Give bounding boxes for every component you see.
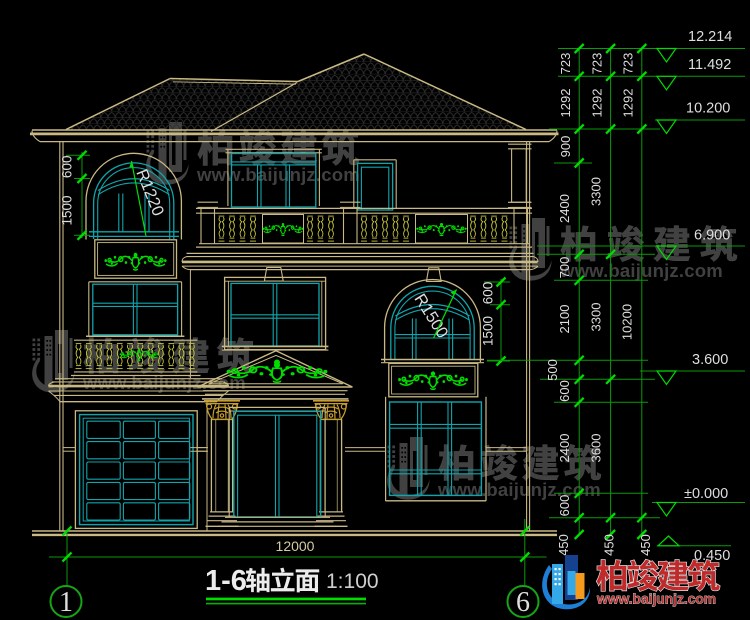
svg-text:723: 723 xyxy=(590,53,605,75)
svg-text:600: 600 xyxy=(557,495,572,517)
svg-text:0.450: 0.450 xyxy=(694,548,730,564)
svg-text:10.200: 10.200 xyxy=(686,101,730,117)
svg-text:1-6: 1-6 xyxy=(205,565,247,597)
svg-text:2400: 2400 xyxy=(557,194,572,223)
svg-text:3.600: 3.600 xyxy=(692,352,728,368)
svg-text:600: 600 xyxy=(481,282,496,305)
svg-text:450: 450 xyxy=(638,534,653,556)
svg-text:600: 600 xyxy=(557,380,572,402)
svg-text:12.214: 12.214 xyxy=(688,29,732,45)
svg-text:1500: 1500 xyxy=(60,195,75,225)
svg-text:12000: 12000 xyxy=(276,538,315,554)
svg-text:700: 700 xyxy=(557,257,572,279)
svg-text:1292: 1292 xyxy=(590,89,605,118)
svg-text:723: 723 xyxy=(621,53,636,75)
svg-text:1292: 1292 xyxy=(558,89,573,118)
svg-text:www.baijunjz.com: www.baijunjz.com xyxy=(196,164,360,185)
svg-text:6: 6 xyxy=(516,587,530,618)
svg-text:1: 1 xyxy=(59,587,73,618)
svg-text:450: 450 xyxy=(556,534,571,556)
svg-text:1292: 1292 xyxy=(621,89,636,118)
svg-text:2400: 2400 xyxy=(557,434,572,463)
svg-text:1500: 1500 xyxy=(481,316,496,346)
svg-text:1:100: 1:100 xyxy=(326,570,379,593)
svg-text:www.baijunjz.com: www.baijunjz.com xyxy=(559,260,723,281)
svg-text:600: 600 xyxy=(60,156,75,179)
svg-text:www.baijunjz.com: www.baijunjz.com xyxy=(596,592,716,607)
svg-text:900: 900 xyxy=(558,136,573,158)
svg-text:450: 450 xyxy=(602,534,617,556)
svg-text:3300: 3300 xyxy=(589,177,604,206)
svg-text:10200: 10200 xyxy=(620,304,635,340)
svg-text:11.492: 11.492 xyxy=(688,57,731,73)
svg-text:2100: 2100 xyxy=(557,305,572,334)
svg-text:3600: 3600 xyxy=(589,434,604,463)
svg-text:±0.000: ±0.000 xyxy=(684,486,728,502)
svg-text:3300: 3300 xyxy=(589,303,604,332)
svg-text:6.900: 6.900 xyxy=(694,228,730,244)
svg-text:500: 500 xyxy=(545,359,560,381)
svg-text:723: 723 xyxy=(558,53,573,75)
